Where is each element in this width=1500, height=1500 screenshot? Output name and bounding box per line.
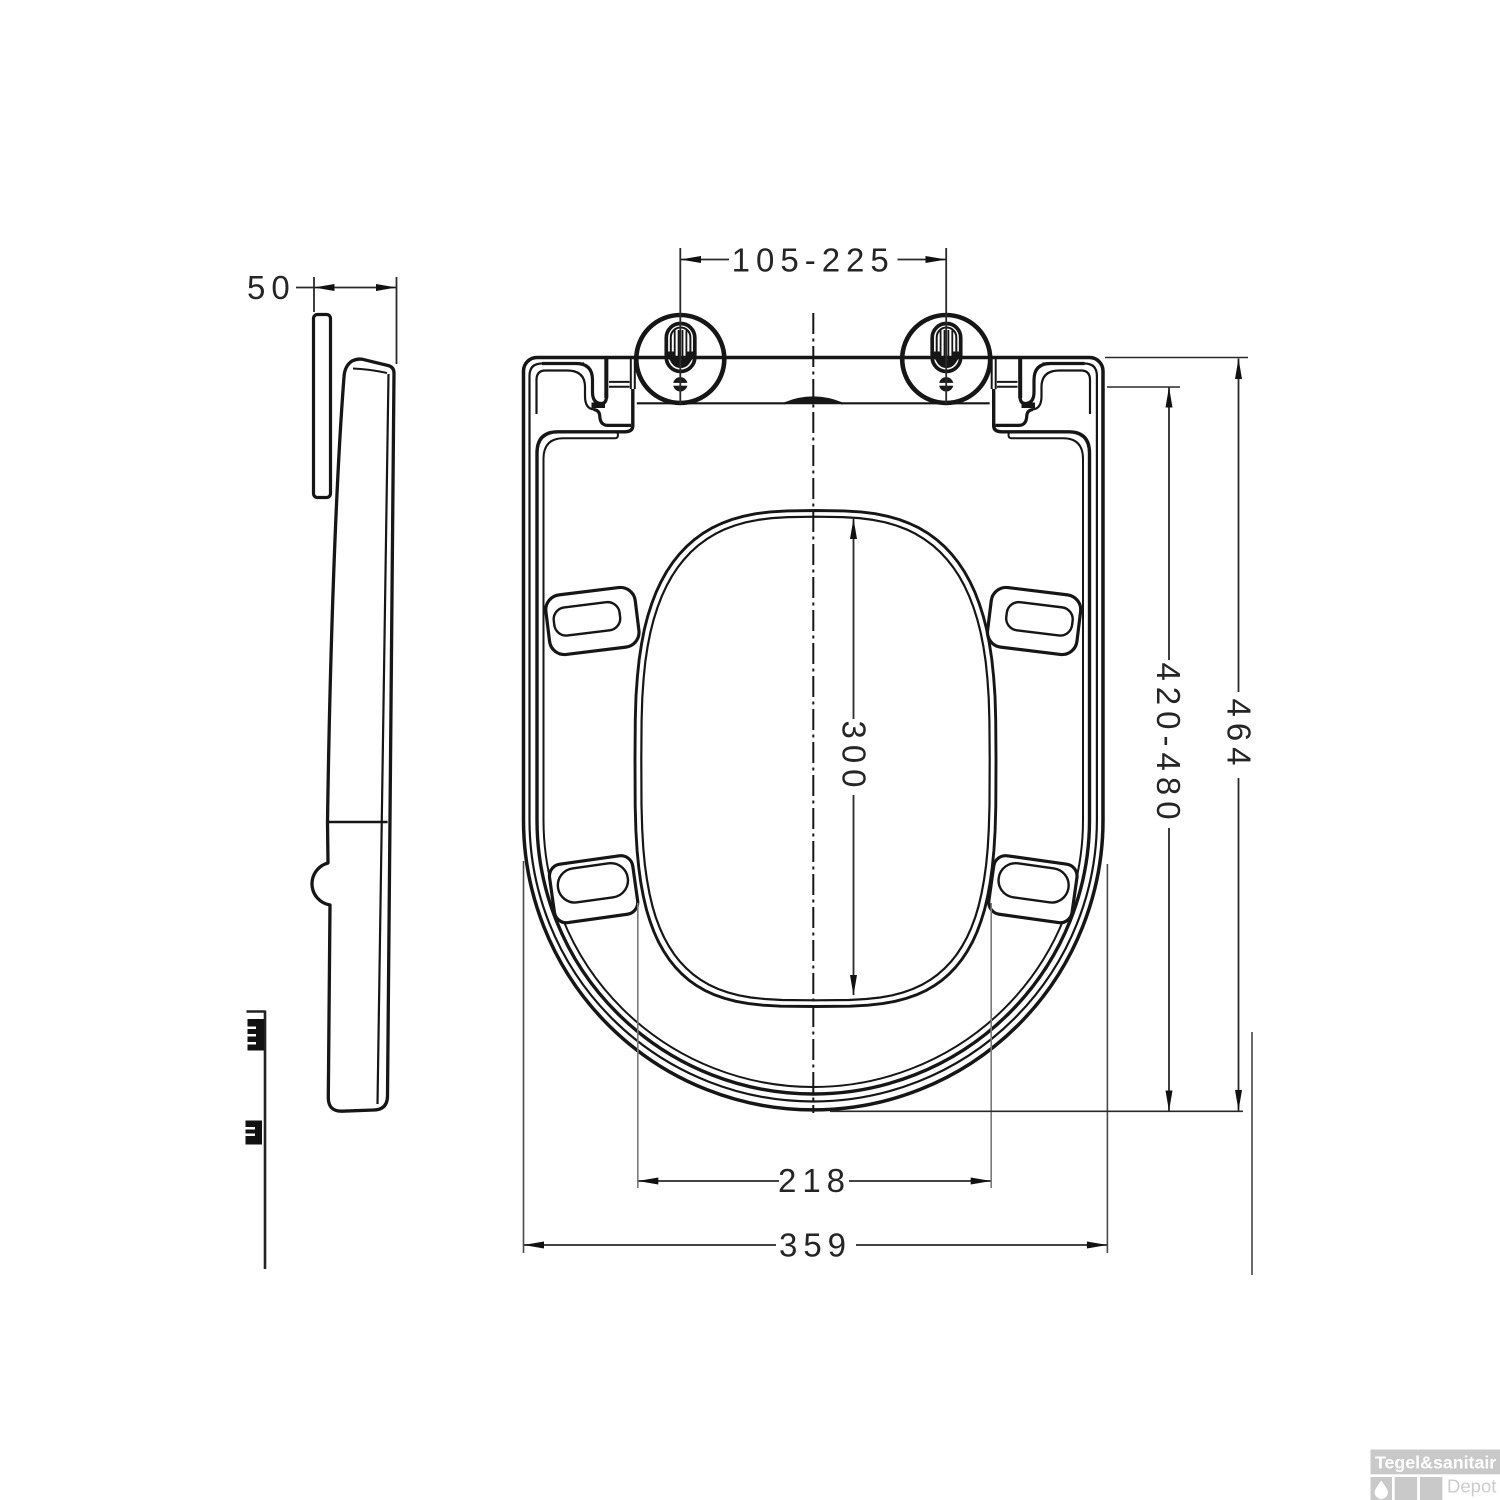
- svg-text:464: 464: [1221, 698, 1258, 771]
- svg-text:300: 300: [836, 720, 873, 793]
- svg-text:218: 218: [778, 1162, 851, 1199]
- svg-text:420-480: 420-480: [1150, 662, 1187, 825]
- svg-text:50: 50: [247, 269, 296, 306]
- svg-text:Depot: Depot: [1447, 1476, 1496, 1497]
- svg-text:Tegel&sanitair: Tegel&sanitair: [1375, 1453, 1496, 1473]
- svg-text:359: 359: [779, 1227, 852, 1264]
- svg-text:105-225: 105-225: [732, 242, 895, 279]
